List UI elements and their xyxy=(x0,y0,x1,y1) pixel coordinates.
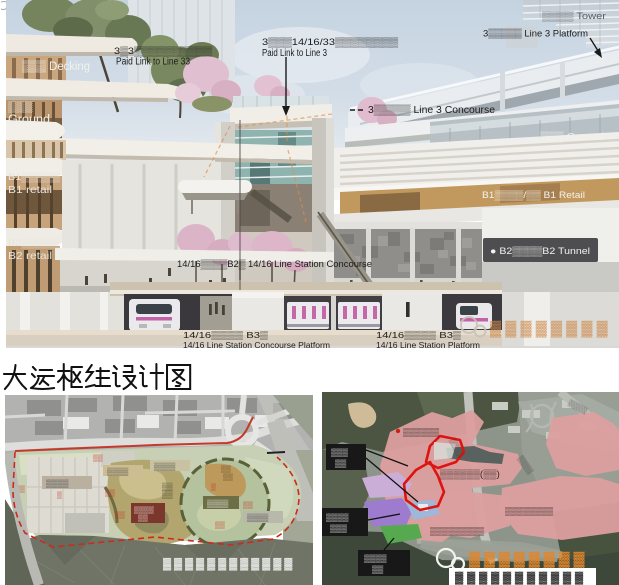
svg-text:▒▒▒ Ground: ▒▒▒ Ground xyxy=(540,131,604,143)
svg-text:▒▒▒▒▒▒(▒▒): ▒▒▒▒▒▒(▒▒) xyxy=(440,469,500,480)
svg-text:▒▒▒▒: ▒▒▒▒ xyxy=(134,506,154,514)
svg-text:▓▓▓▓▓▓▓▓▓▓▓: ▓▓▓▓▓▓▓▓▓▓▓ xyxy=(455,571,587,585)
svg-text:Paid Link to Line 33: Paid Link to Line 33 xyxy=(116,57,190,68)
svg-text:3▒▒▒14/16/33▒▒▒▒▒▒▒▒: 3▒▒▒14/16/33▒▒▒▒▒▒▒▒ xyxy=(262,37,398,48)
svg-text:▒▒▒ Decking: ▒▒▒ Decking xyxy=(22,60,90,73)
svg-text:▓▓▓▓▓▓▓▓: ▓▓▓▓▓▓▓▓ xyxy=(490,320,612,338)
svg-text:14/16▒▒▒▒B2▒ 14/16 Line Statio: 14/16▒▒▒▒B2▒ 14/16 Line Station Concours… xyxy=(177,259,372,270)
svg-text:3▒3▒▒▒▒▒▒▒▒▒▒: 3▒3▒▒▒▒▒▒▒▒▒▒ xyxy=(114,46,212,57)
svg-text:B2 retail: B2 retail xyxy=(8,250,52,262)
svg-text:▒▒▒▒ Tower: ▒▒▒▒ Tower xyxy=(542,11,606,22)
svg-text:▒▒▒: ▒▒▒ xyxy=(8,100,33,113)
svg-text:14/16▒▒▒▒ B3▒: 14/16▒▒▒▒ B3▒ xyxy=(183,330,268,340)
svg-text:▒▒: ▒▒ xyxy=(215,521,225,529)
svg-text:▒▒▒▒: ▒▒▒▒ xyxy=(247,513,269,522)
svg-text:B1 retail: B1 retail xyxy=(8,184,52,196)
svg-text:3▒▒▒▒▒ Line 3 Platform: 3▒▒▒▒▒ Line 3 Platform xyxy=(483,29,588,40)
svg-text:14/16▒▒▒▒ B3▒: 14/16▒▒▒▒ B3▒ xyxy=(376,330,461,340)
svg-text:▒▒: ▒▒ xyxy=(115,511,125,519)
svg-text:▒▒▒▒: ▒▒▒▒ xyxy=(46,479,69,488)
svg-text:▒▒: ▒▒ xyxy=(335,459,347,468)
svg-text:B2▒▒▒▒▒: B2▒▒▒▒▒ xyxy=(8,238,61,249)
svg-text:▒▒▒▒▒▒▒▒▒: ▒▒▒▒▒▒▒▒▒ xyxy=(430,526,484,536)
svg-text:▒▒▒▒: ▒▒▒▒ xyxy=(207,499,229,508)
svg-text:▒▒▒: ▒▒▒ xyxy=(331,448,348,457)
svg-text:▒▒: ▒▒ xyxy=(93,454,103,462)
svg-text:▒▒▒▒: ▒▒▒▒ xyxy=(154,462,176,471)
svg-text:▓▓▓▓▓▓▓▓: ▓▓▓▓▓▓▓▓ xyxy=(469,551,588,569)
svg-text:▒▒: ▒▒ xyxy=(243,501,253,509)
svg-text:▒: ▒ xyxy=(211,483,216,491)
svg-text:▒▒: ▒▒ xyxy=(372,565,384,574)
svg-text:▒▒▒▒: ▒▒▒▒ xyxy=(326,513,349,522)
svg-text:▒▒▒▒: ▒▒▒▒ xyxy=(364,554,387,563)
svg-text:Ground: Ground xyxy=(8,114,50,126)
svg-text:▒: ▒ xyxy=(57,491,62,499)
svg-text:▒▒▒▒▒▒▒▒: ▒▒▒▒▒▒▒▒ xyxy=(505,506,553,516)
svg-text:▒▒: ▒▒ xyxy=(138,514,148,522)
svg-text:▒▒: ▒▒ xyxy=(223,473,233,481)
svg-text:Paid Link to Line 3: Paid Link to Line 3 xyxy=(262,48,327,59)
svg-text:▒▒: ▒▒ xyxy=(105,489,115,497)
svg-text:● B2▒▒▒▒B2 Tunnel: ● B2▒▒▒▒B2 Tunnel xyxy=(490,246,590,257)
svg-text:▒▒▒: ▒▒▒ xyxy=(330,524,347,533)
svg-text:▒▒▒▒▒▒: ▒▒▒▒▒▒ xyxy=(403,427,439,437)
svg-text:▒▒: ▒▒ xyxy=(221,465,231,473)
svg-text:14/16 Line Station Concourse P: 14/16 Line Station Concourse Platform xyxy=(183,340,330,348)
svg-text:▒▒: ▒▒ xyxy=(162,490,173,499)
svg-text:B1▒▒▒▒▒: B1▒▒▒▒▒ xyxy=(8,172,61,183)
svg-text:3▒▒▒▒▒ Line 3 Concourse: 3▒▒▒▒▒ Line 3 Concourse xyxy=(368,104,495,116)
svg-text:▓▓▓▓▓▓▓▓▓▓▓▓: ▓▓▓▓▓▓▓▓▓▓▓▓ xyxy=(163,557,295,571)
svg-text:14/16 Line Station Platform: 14/16 Line Station Platform xyxy=(376,340,480,348)
svg-text:B1▒▒▒▒/▒▒ B1 Retail: B1▒▒▒▒/▒▒ B1 Retail xyxy=(482,190,585,201)
svg-text:▒▒▒▒: ▒▒▒▒ xyxy=(107,467,129,476)
